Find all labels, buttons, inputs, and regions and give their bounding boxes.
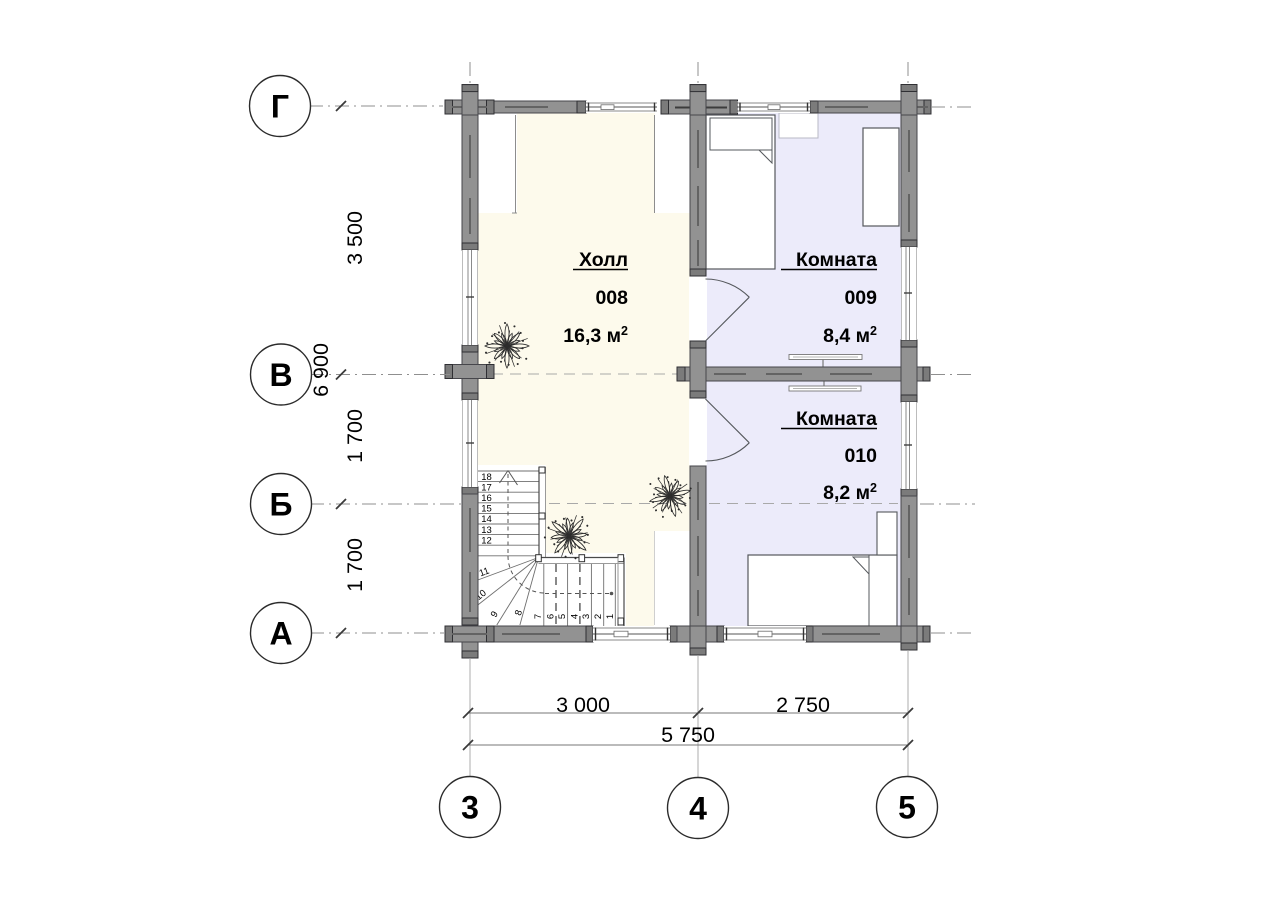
svg-text:Б: Б bbox=[270, 487, 293, 523]
svg-text:2 750: 2 750 bbox=[776, 693, 830, 717]
svg-text:15: 15 bbox=[481, 504, 492, 515]
svg-text:А: А bbox=[269, 616, 292, 652]
svg-text:8,2 м2: 8,2 м2 bbox=[823, 481, 877, 504]
svg-text:1: 1 bbox=[605, 614, 616, 619]
svg-text:5: 5 bbox=[898, 790, 916, 826]
svg-text:16,3 м2: 16,3 м2 bbox=[563, 324, 628, 347]
svg-text:Комната: Комната bbox=[796, 249, 877, 271]
svg-text:3: 3 bbox=[581, 614, 592, 619]
svg-text:5: 5 bbox=[557, 614, 568, 619]
svg-text:14: 14 bbox=[481, 514, 492, 525]
svg-text:Г: Г bbox=[271, 89, 289, 125]
svg-text:18: 18 bbox=[481, 472, 492, 483]
svg-text:3: 3 bbox=[461, 790, 479, 826]
svg-text:1 700: 1 700 bbox=[343, 409, 367, 463]
svg-text:В: В bbox=[269, 357, 292, 393]
svg-text:16: 16 bbox=[481, 493, 492, 504]
svg-text:3 000: 3 000 bbox=[556, 693, 610, 717]
svg-text:12: 12 bbox=[481, 535, 492, 546]
svg-text:Холл: Холл bbox=[579, 249, 628, 271]
svg-text:4: 4 bbox=[569, 614, 580, 619]
svg-text:4: 4 bbox=[689, 791, 707, 827]
svg-text:7: 7 bbox=[533, 614, 544, 619]
svg-text:009: 009 bbox=[844, 287, 877, 309]
svg-text:1 700: 1 700 bbox=[343, 538, 367, 592]
svg-text:3 500: 3 500 bbox=[343, 211, 367, 265]
svg-text:Комната: Комната bbox=[796, 408, 877, 430]
svg-text:6 900: 6 900 bbox=[309, 343, 333, 397]
svg-text:010: 010 bbox=[844, 445, 877, 467]
svg-text:6: 6 bbox=[546, 614, 557, 619]
svg-text:008: 008 bbox=[595, 287, 628, 309]
svg-text:5 750: 5 750 bbox=[661, 723, 715, 747]
svg-text:13: 13 bbox=[481, 525, 492, 536]
svg-text:2: 2 bbox=[593, 614, 604, 619]
svg-text:17: 17 bbox=[481, 482, 492, 493]
svg-text:8,4 м2: 8,4 м2 bbox=[823, 324, 877, 347]
